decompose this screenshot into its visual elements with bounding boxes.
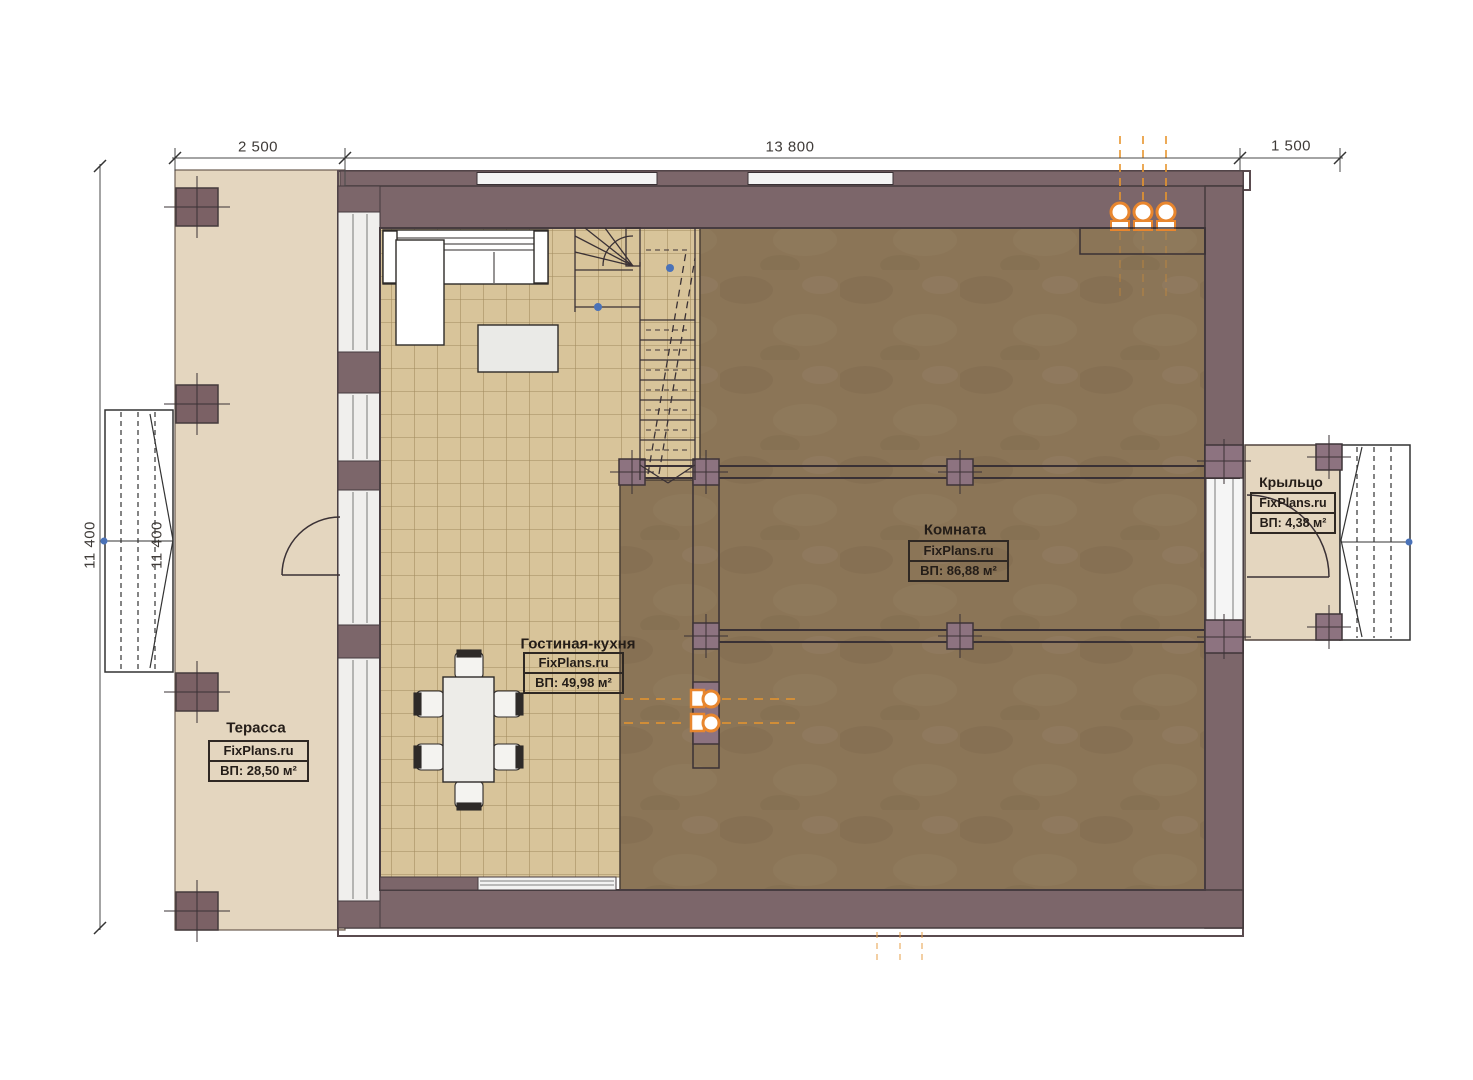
room-area: ВП: 49,98 м² <box>525 672 622 692</box>
room-title-porch: Крыльцо <box>1259 474 1323 490</box>
brand-watermark: FixPlans.ru <box>210 742 307 760</box>
brand-watermark: FixPlans.ru <box>910 542 1007 560</box>
room-info-porch: FixPlans.ru ВП: 4,38 м² <box>1250 492 1336 534</box>
room-title-room: Комната <box>924 522 986 539</box>
room-info-living: FixPlans.ru ВП: 49,98 м² <box>523 652 624 694</box>
room-title-living: Гостиная-кухня <box>521 636 636 653</box>
room-info-room: FixPlans.ru ВП: 86,88 м² <box>908 540 1009 582</box>
room-info-terrace: FixPlans.ru ВП: 28,50 м² <box>208 740 309 782</box>
room-title-terrace: Терасса <box>226 720 285 737</box>
room-area: ВП: 28,50 м² <box>210 760 307 780</box>
brand-watermark: FixPlans.ru <box>1252 494 1334 512</box>
bottom-wall-window <box>380 877 616 890</box>
terrace-floor <box>175 170 345 930</box>
floor-plan-drawing <box>0 0 1473 1080</box>
dim-top-house: 13 800 <box>766 139 815 156</box>
porch-steps <box>1340 445 1413 640</box>
dim-left-outer: 11 400 <box>82 521 99 569</box>
room-area: ВП: 86,88 м² <box>910 560 1007 580</box>
room-area: ВП: 4,38 м² <box>1252 512 1334 532</box>
coffee-table <box>478 325 558 372</box>
dim-top-terrace: 2 500 <box>238 139 278 156</box>
dim-top-porch: 1 500 <box>1271 138 1311 155</box>
brand-watermark: FixPlans.ru <box>525 654 622 672</box>
floor-plan-page: 2 500 13 800 1 500 11 400 11 400 Терасса… <box>0 0 1473 1080</box>
dim-left-inner: 11 400 <box>149 521 166 569</box>
